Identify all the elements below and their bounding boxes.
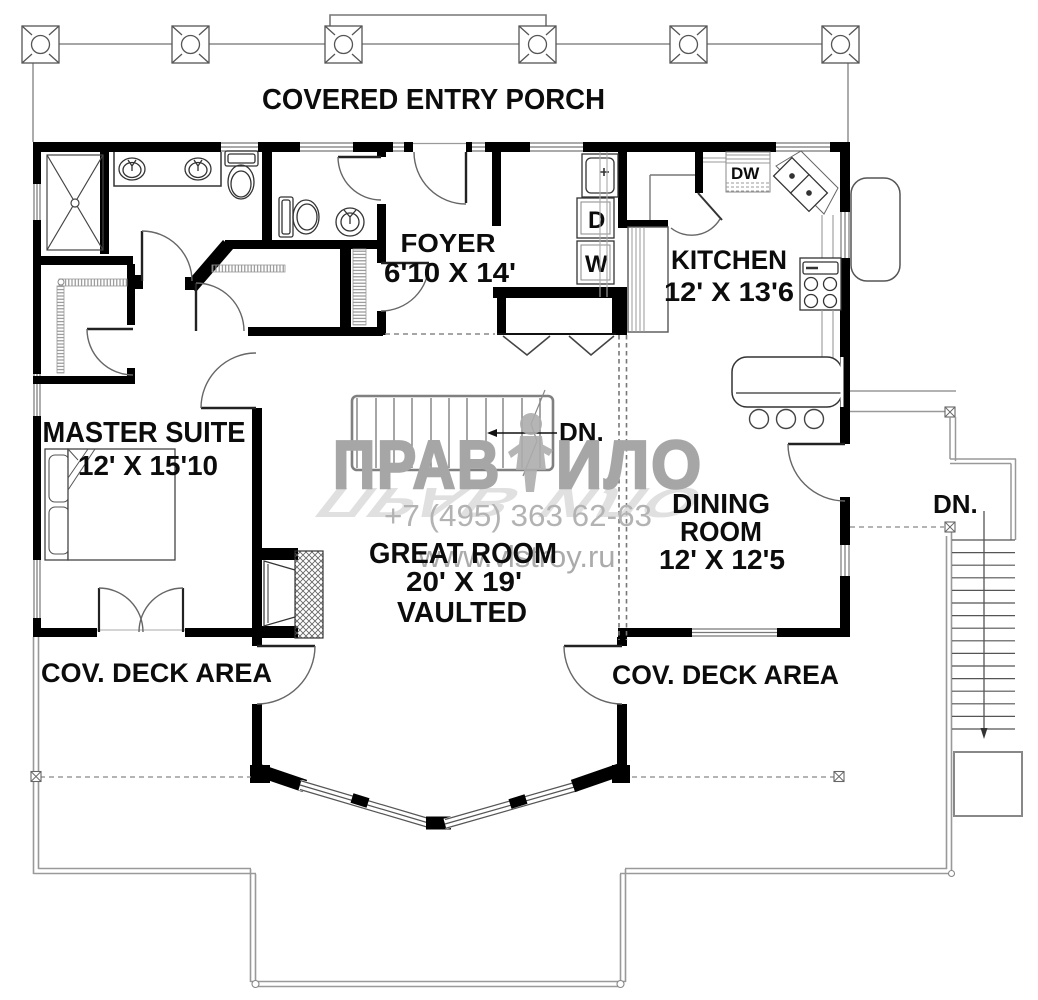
svg-text:FOYER: FOYER <box>401 228 496 258</box>
svg-text:+7 (495) 363 62-63: +7 (495) 363 62-63 <box>384 498 652 533</box>
svg-text:ПРАВ: ПРАВ <box>333 427 501 503</box>
svg-text:12' X 15'10: 12' X 15'10 <box>78 450 218 481</box>
svg-text:COVERED ENTRY PORCH: COVERED ENTRY PORCH <box>262 84 605 116</box>
svg-text:ROOM: ROOM <box>680 516 762 547</box>
svg-text:VAULTED: VAULTED <box>397 597 527 629</box>
svg-text:20' X 19': 20' X 19' <box>406 566 522 597</box>
svg-text:DW: DW <box>731 164 760 183</box>
svg-text:D: D <box>588 207 605 234</box>
svg-text:DN.: DN. <box>933 489 978 519</box>
svg-text:COV. DECK AREA: COV. DECK AREA <box>612 660 839 690</box>
svg-text:KITCHEN: KITCHEN <box>671 245 787 275</box>
svg-text:12' X 13'6: 12' X 13'6 <box>664 277 794 307</box>
svg-text:COV. DECK AREA: COV. DECK AREA <box>41 658 272 688</box>
svg-text:DINING: DINING <box>672 488 770 519</box>
svg-text:W: W <box>585 251 608 278</box>
svg-text:12' X 12'5: 12' X 12'5 <box>659 544 785 575</box>
svg-text:MASTER SUITE: MASTER SUITE <box>43 417 246 449</box>
svg-text:6'10 X 14': 6'10 X 14' <box>384 257 516 288</box>
